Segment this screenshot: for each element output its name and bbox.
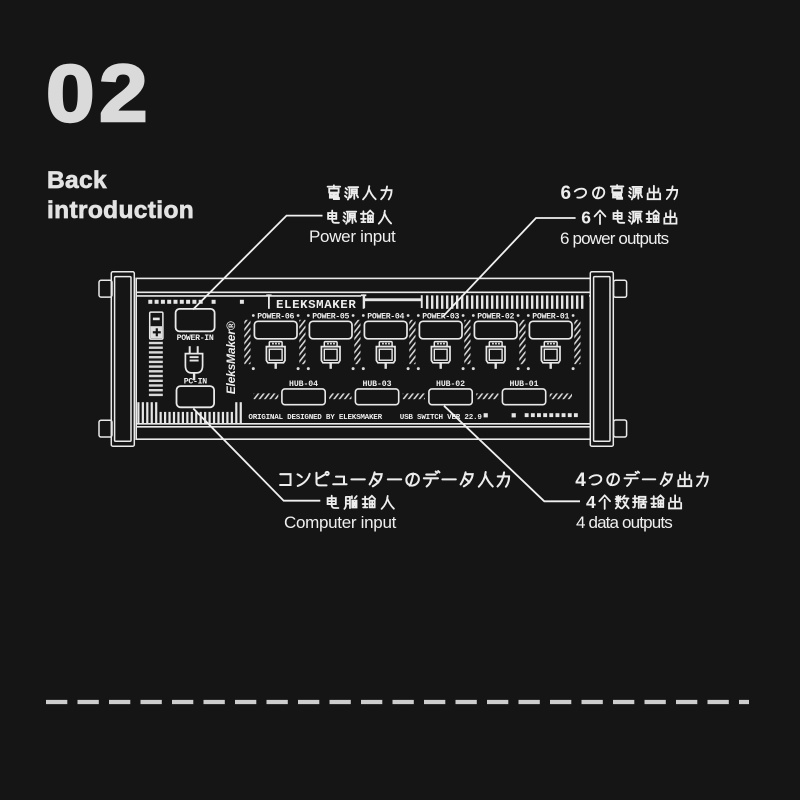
svg-text:HUB-02: HUB-02 xyxy=(436,380,465,389)
svg-text:HUB-01: HUB-01 xyxy=(510,380,539,389)
svg-text:POWER-IN: POWER-IN xyxy=(177,334,214,343)
svg-text:6: 6 xyxy=(581,207,591,227)
svg-text:6: 6 xyxy=(561,183,572,204)
svg-text:POWER-03: POWER-03 xyxy=(422,312,459,321)
svg-text:POWER-01: POWER-01 xyxy=(532,312,569,321)
svg-text:POWER-02: POWER-02 xyxy=(477,312,514,321)
svg-text:POWER-05: POWER-05 xyxy=(312,312,349,321)
svg-text:EleksMaker®: EleksMaker® xyxy=(224,321,238,394)
svg-text:HUB-03: HUB-03 xyxy=(363,380,392,389)
svg-text:PC-IN: PC-IN xyxy=(184,377,207,386)
svg-text:4: 4 xyxy=(586,492,596,512)
svg-text:ELEKSMAKER: ELEKSMAKER xyxy=(276,298,356,312)
svg-text:POWER-06: POWER-06 xyxy=(257,312,294,321)
svg-text:POWER-04: POWER-04 xyxy=(367,312,404,321)
svg-text:4: 4 xyxy=(575,470,586,491)
svg-text:HUB-04: HUB-04 xyxy=(289,380,318,389)
svg-text:USB SWITCH VER 22.9: USB SWITCH VER 22.9 xyxy=(400,414,483,422)
svg-text:ORIGINAL DESIGNED BY ELEKSMAKE: ORIGINAL DESIGNED BY ELEKSMAKER xyxy=(248,414,382,422)
